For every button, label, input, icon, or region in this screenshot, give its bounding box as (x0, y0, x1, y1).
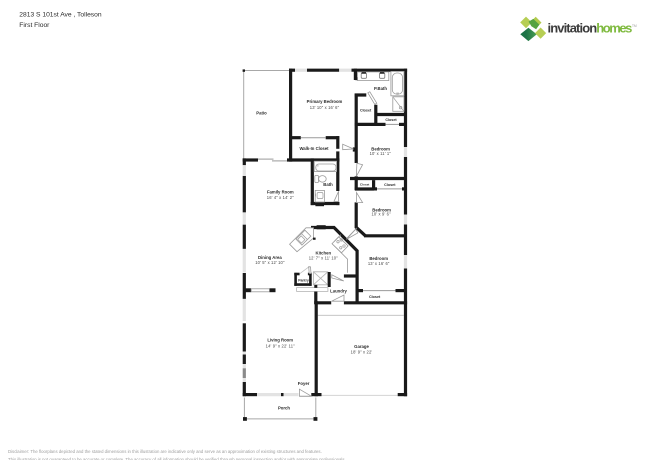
svg-text:16' 4" x 14' 2": 16' 4" x 14' 2" (267, 195, 294, 200)
svg-text:Porch: Porch (278, 406, 290, 411)
svg-text:Walk-In Closet: Walk-In Closet (299, 146, 329, 151)
svg-text:Closet: Closet (384, 183, 396, 187)
svg-text:Closet: Closet (360, 183, 369, 187)
svg-text:Living Room: Living Room (267, 338, 293, 343)
svg-text:P.Bath: P.Bath (374, 86, 387, 91)
svg-text:Laundry: Laundry (330, 288, 347, 293)
svg-text:Closet: Closet (360, 109, 372, 113)
svg-text:2813 S 101st Ave , Tolleson: 2813 S 101st Ave , Tolleson (19, 11, 102, 18)
svg-text:Bath: Bath (323, 182, 333, 187)
svg-text:Family Room: Family Room (267, 190, 294, 195)
svg-text:10' x 11' 1": 10' x 11' 1" (370, 151, 392, 156)
svg-text:Disclaimer: The floorplans dep: Disclaimer: The floorplans depicted and … (8, 449, 322, 454)
svg-text:10' x 9' 6": 10' x 9' 6" (371, 212, 391, 217)
svg-text:10' 5" x 12' 10": 10' 5" x 12' 10" (255, 260, 285, 265)
svg-text:13' 10" x 16' 6": 13' 10" x 16' 6" (310, 105, 340, 110)
svg-text:14' 9" x 22' 11": 14' 9" x 22' 11" (266, 343, 295, 348)
svg-text:Patio: Patio (256, 111, 267, 116)
svg-text:invitationhomes: invitationhomes (548, 21, 633, 36)
svg-text:Pantry: Pantry (298, 279, 309, 283)
svg-text:First Floor: First Floor (19, 22, 50, 29)
svg-text:Garage: Garage (354, 344, 369, 349)
svg-text:13' x 16' 6": 13' x 16' 6" (368, 261, 390, 266)
svg-text:Closet: Closet (385, 118, 397, 122)
svg-text:12' 7" x 11' 10": 12' 7" x 11' 10" (309, 256, 338, 261)
svg-text:Primary Bedroom: Primary Bedroom (307, 99, 343, 104)
svg-text:Foyer: Foyer (298, 381, 310, 386)
svg-text:Closet: Closet (369, 295, 381, 299)
svg-text:18' 9" x 22': 18' 9" x 22' (351, 350, 373, 355)
svg-text:TM: TM (632, 24, 637, 28)
